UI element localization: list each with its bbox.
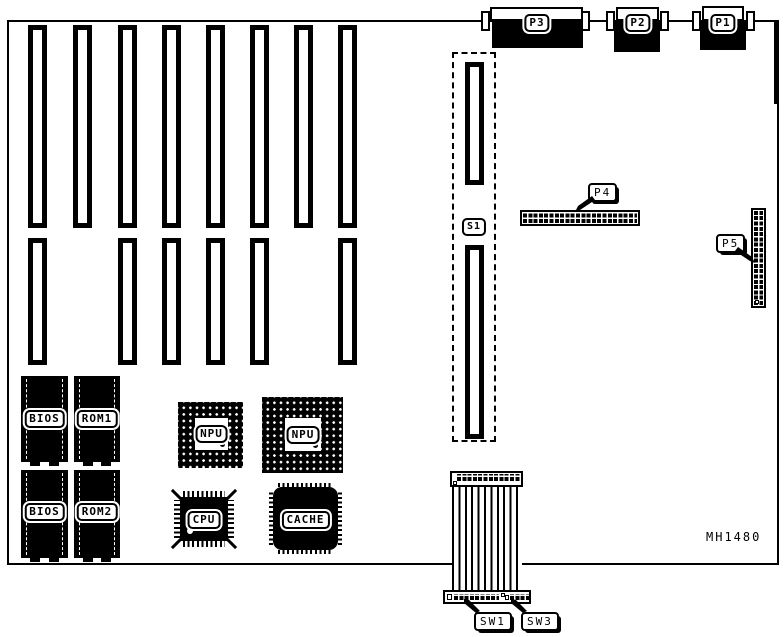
p5-pins	[754, 211, 763, 305]
leader-line	[464, 599, 480, 613]
chip-label-npu2: NPU	[287, 426, 320, 444]
npu-core: NPU	[285, 418, 321, 451]
expansion-slot	[250, 25, 269, 228]
riser-card-zone: S1	[452, 52, 496, 442]
cache-pins	[338, 492, 342, 545]
chip-cpu: CPU	[174, 491, 234, 547]
cache-pins	[278, 550, 333, 554]
cpu-pins	[183, 541, 225, 547]
port-label-p2: P2	[625, 14, 650, 32]
expansion-slot	[73, 25, 92, 228]
chip-foot	[83, 462, 93, 466]
port-p3-screw	[581, 11, 590, 31]
expansion-slot	[162, 25, 181, 228]
leader-line	[511, 599, 527, 613]
chip-foot	[83, 558, 93, 562]
pin1-dot	[313, 443, 318, 448]
chip-label-npu1: NPU	[195, 425, 228, 443]
chip-bios-2: BIOS	[21, 470, 68, 558]
chip-label-rom2: ROM2	[77, 503, 118, 521]
expansion-slot-extension	[206, 238, 225, 365]
cache-body: CACHE	[273, 487, 338, 550]
chip-foot	[30, 462, 40, 466]
chip-label-rom1: ROM1	[77, 410, 118, 428]
chip-rom-1: ROM1	[74, 376, 120, 462]
p4-pins	[523, 213, 637, 223]
pin1-marker	[505, 595, 509, 600]
leader-line	[735, 247, 755, 263]
switch-label-sw1: SW1	[474, 612, 512, 631]
expansion-slot	[338, 25, 357, 228]
expansion-slot	[118, 25, 137, 228]
switch-label-sw3: SW3	[521, 612, 559, 631]
expansion-slot-extension	[118, 238, 137, 365]
chip-npu-2: NPU	[262, 397, 343, 473]
callout-sw1: SW1	[474, 610, 512, 631]
pin1-marker	[447, 594, 452, 600]
pin1-marker	[755, 300, 759, 304]
chip-foot	[49, 558, 59, 562]
leader-line	[575, 196, 595, 212]
cpu-body: CPU	[180, 497, 228, 541]
chip-npu-1: NPU	[178, 402, 243, 468]
chip-cache: CACHE	[269, 483, 342, 554]
port-p2-screw	[660, 11, 669, 31]
callout-p5: P5	[716, 232, 745, 253]
expansion-slot	[294, 25, 313, 228]
callout-p4: P4	[588, 181, 617, 202]
connector-label-s1: S1	[462, 218, 486, 236]
motherboard-diagram: BIOS ROM1 BIOS ROM2 NPU NPU	[0, 0, 784, 637]
board-right-edge-segment	[774, 20, 779, 104]
part-number: MH1480	[706, 530, 761, 544]
chip-rom-2: ROM2	[74, 470, 120, 558]
chip-bios-1: BIOS	[21, 376, 68, 462]
chip-foot	[101, 558, 111, 562]
cpu-pins	[228, 500, 234, 538]
expansion-slot	[206, 25, 225, 228]
port-p1-screw	[692, 11, 701, 31]
riser-slot-lower	[465, 245, 484, 439]
expansion-slot-extension	[338, 238, 357, 365]
chip-label-bios1: BIOS	[24, 410, 65, 428]
ribbon-header	[450, 471, 523, 487]
chip-label-bios2: BIOS	[24, 503, 65, 521]
chip-foot	[101, 462, 111, 466]
port-p2-screw	[606, 11, 615, 31]
npu-core: NPU	[195, 418, 228, 450]
ribbon-cable	[452, 487, 522, 591]
chip-foot	[30, 558, 40, 562]
expansion-slot-extension	[250, 238, 269, 365]
port-p3-screw	[481, 11, 490, 31]
expansion-slot	[28, 25, 47, 228]
expansion-slot-extension	[162, 238, 181, 365]
riser-slot-upper	[465, 62, 484, 185]
expansion-slot-extension	[28, 238, 47, 365]
port-label-p3: P3	[524, 14, 549, 32]
chip-label-cache: CACHE	[281, 511, 329, 529]
port-label-p1: P1	[710, 14, 735, 32]
port-p1-screw	[746, 11, 755, 31]
connector-p4	[520, 210, 640, 226]
callout-sw3: SW3	[521, 610, 559, 631]
pin1-marker	[453, 481, 457, 485]
chip-label-cpu: CPU	[188, 511, 221, 529]
ribbon-header-pins	[457, 474, 520, 481]
chip-foot	[49, 462, 59, 466]
